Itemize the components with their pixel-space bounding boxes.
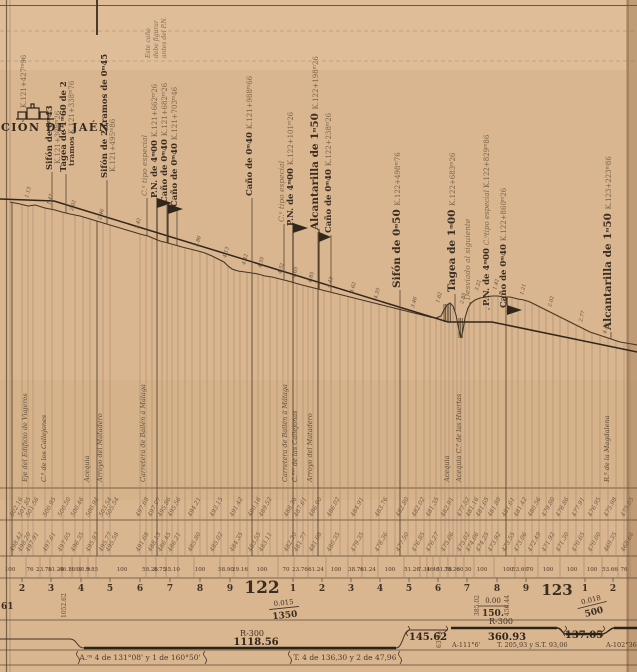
hectometre-number: 2 <box>319 584 325 594</box>
angle-label-1: A-111°6' <box>451 641 481 649</box>
profile-drawing: Perfil longitudinal de la línea — Estaci… <box>0 0 637 672</box>
scanned-profile-sheet: Perfil longitudinal de la línea — Estaci… <box>0 0 637 672</box>
partial-distance: 70 <box>527 567 534 573</box>
partial-distance: 70 <box>283 567 290 573</box>
left-margin-number: 61 <box>1 602 14 612</box>
margin-note-line: antes del P.N. <box>161 17 168 58</box>
bottom-angles-text: A.os 4 de 131°08' y 1 de 160°50' <box>78 653 200 662</box>
chainage-mark: 63.44 <box>436 631 443 648</box>
partial-distance: 60 <box>457 567 464 573</box>
structure-label: Caño de 0m40 K.121+988m66 <box>244 75 255 196</box>
margin-note-line: Este caño <box>145 28 152 59</box>
hectometre-number: 4 <box>78 584 84 594</box>
hectometre-number: 9 <box>227 584 233 594</box>
hectometre-number: 3 <box>48 584 54 594</box>
hectometre-number: 7 <box>464 584 470 594</box>
structure-label: Caño de 0m40 K.121+703m46 <box>169 86 180 207</box>
station-km-label: K.121+427m96 <box>20 54 28 108</box>
partial-distance: 23.76 <box>292 567 308 573</box>
gradient-length: 150. <box>482 609 504 619</box>
partial-distance: 100 <box>543 567 554 573</box>
partial-distance: 76 <box>621 567 628 573</box>
structure-label: P.N. de 4m00 K.121+662m26 <box>150 83 160 198</box>
structure-label: Desviado al siguiente <box>463 218 472 301</box>
structure-label: Caño de 0m40 K.121+682m26 <box>159 82 170 203</box>
partial-distance: 30 <box>465 567 472 573</box>
alignment-length-1: 1118.56 <box>233 637 278 648</box>
partial-distance: 100 <box>477 567 488 573</box>
partial-distance: 100 <box>257 567 268 573</box>
crossing-name: Arroyo del Matadero <box>306 413 314 483</box>
partial-distance: 100 <box>195 567 206 573</box>
hectometre-number: 8 <box>197 584 203 594</box>
partial-distance: 100 <box>587 567 598 573</box>
structure-label: P.N. de 4m00 K.122+101m26 <box>286 111 296 226</box>
hectometre-number: 1 <box>290 584 296 594</box>
angle-label-2: A-102°36' <box>605 641 637 649</box>
partial-distance: 61.24 <box>308 567 324 573</box>
partial-distance: 61.24 <box>360 567 376 573</box>
structure-label: Caño de 0m40 K.122+238m26 <box>323 112 334 233</box>
margin-note-line: debe figurar <box>153 19 160 58</box>
hectometre-number: 7 <box>167 584 173 594</box>
partial-distance: 100 <box>5 567 16 573</box>
crossing-name: Acequia <box>83 455 91 483</box>
hectometre-number: 3 <box>348 584 354 594</box>
chainage-mark: 456.44 <box>504 595 511 616</box>
chainage-mark: 385.02 <box>474 595 481 616</box>
chainage-mark: 1052.62 <box>61 593 68 618</box>
partial-distance: 29.16 <box>232 567 248 573</box>
km-marker-123: 123 <box>541 581 572 599</box>
hectometre-number: 5 <box>406 584 412 594</box>
hectometre-number: 6 <box>137 584 143 594</box>
partial-distance: 100 <box>385 567 396 573</box>
partial-distance: 100 <box>117 567 128 573</box>
km-marker-122: 122 <box>244 578 280 598</box>
hectometre-number: 9 <box>523 584 529 594</box>
structure-label: Caño de 0m40 K.122+860m26 <box>498 187 509 308</box>
tangent-label: T. 205,93 y S.T. 93,06 <box>497 641 567 649</box>
crossing-name: Acequia C.o de las Huertas <box>455 393 463 483</box>
crossing-name: Arroyo del Matadero <box>96 413 104 483</box>
gradient-value: 0.00 <box>485 597 501 605</box>
partial-distance: 100 <box>567 567 578 573</box>
hectometre-number: 5 <box>107 584 113 594</box>
hectometre-number: 4 <box>377 584 383 594</box>
hectometre-number: 1 <box>582 584 588 594</box>
crossing-name: Carretera de Bailén á Málaga <box>139 384 147 482</box>
crossing-name: R.a de la Magdalena <box>603 415 611 483</box>
crossing-name: Eje del Edificio de Viajeros <box>21 393 29 483</box>
alignment-length-4: 137.05 <box>565 630 603 641</box>
partial-distance: 53.66 <box>602 567 618 573</box>
crossing-name: Carretera de Bailén á Málaga <box>281 384 289 482</box>
partial-distance: 100 <box>331 567 342 573</box>
hectometre-number: 6 <box>435 584 441 594</box>
structure-label: P.N. de 4m00 C.atipo especial K.122+829m… <box>482 134 492 306</box>
partial-distance: 76 <box>27 567 34 573</box>
bottom-tangents-text: T. 4 de 136,30 y 2 de 47,96 <box>294 653 397 662</box>
structure-label: K.121+495m86 <box>109 118 117 172</box>
hectometre-number: 8 <box>494 584 500 594</box>
crossing-name: Acequia <box>443 455 451 483</box>
crossing-name: C.a de los Callejones <box>40 414 48 482</box>
hectometre-number: 2 <box>19 584 25 594</box>
hectometre-number: 2 <box>610 584 616 594</box>
